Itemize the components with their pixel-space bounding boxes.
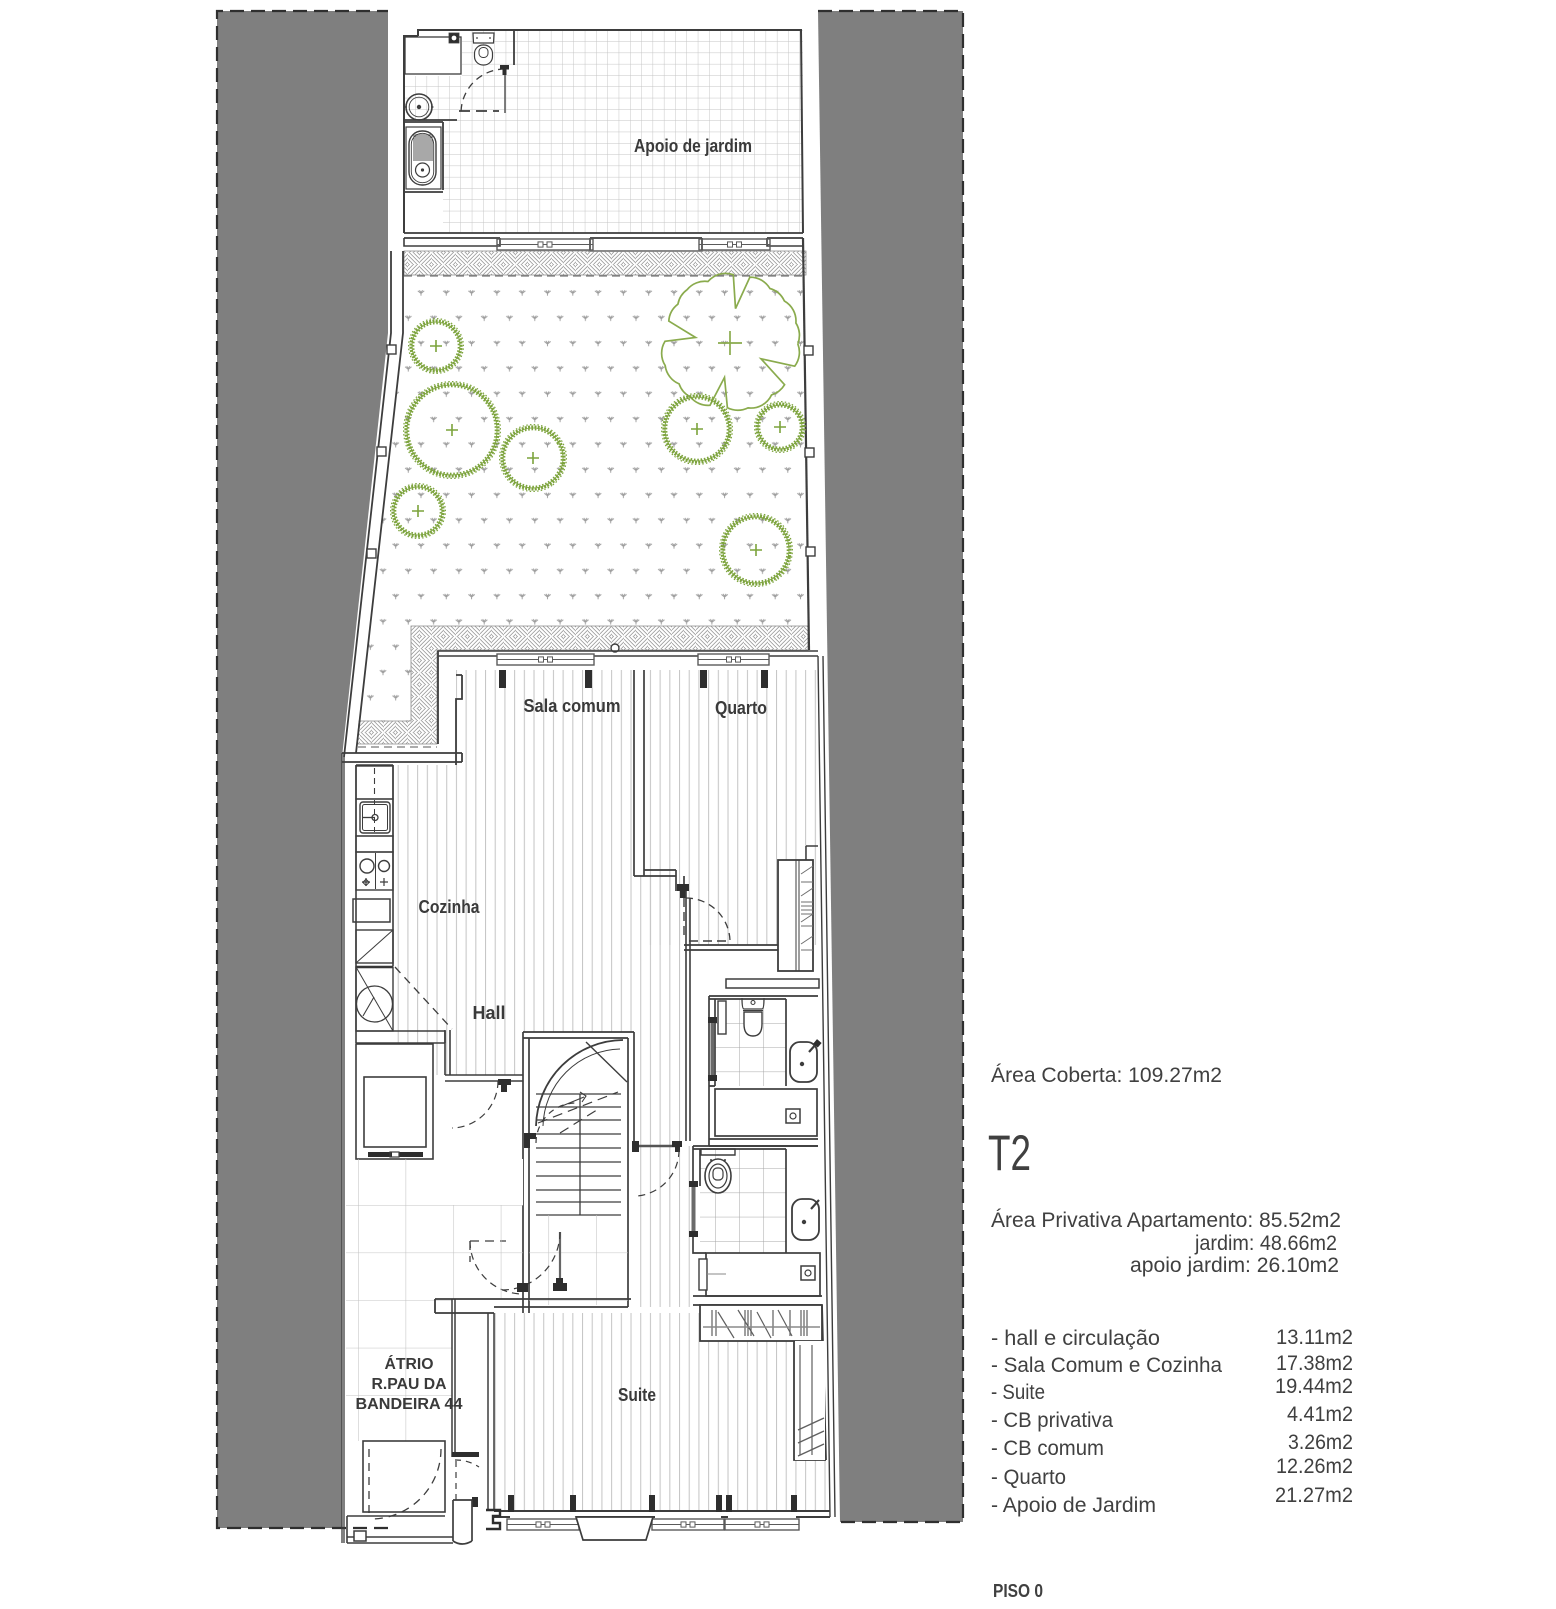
svg-text:- CB privativa: - CB privativa (991, 1409, 1113, 1432)
svg-text:Apoio de jardim: Apoio de jardim (634, 136, 752, 156)
svg-text:PISO 0: PISO 0 (993, 1581, 1043, 1601)
svg-text:13.11m2: 13.11m2 (1276, 1326, 1353, 1349)
svg-text:3.26m2: 3.26m2 (1288, 1431, 1353, 1454)
svg-text:jardim: 48.66m2: jardim: 48.66m2 (1194, 1232, 1337, 1255)
svg-text:BANDEIRA 44: BANDEIRA 44 (356, 1396, 463, 1413)
svg-text:- CB comum: - CB comum (991, 1437, 1104, 1460)
svg-text:Área Privativa Apartamento: 85: Área Privativa Apartamento: 85.52m2 (991, 1209, 1341, 1232)
svg-text:- Suite: - Suite (991, 1381, 1045, 1404)
svg-text:Cozinha: Cozinha (419, 897, 481, 917)
svg-text:19.44m2: 19.44m2 (1275, 1375, 1353, 1398)
svg-text:R.PAU DA: R.PAU DA (372, 1376, 447, 1393)
svg-text:4.41m2: 4.41m2 (1287, 1403, 1353, 1426)
svg-text:21.27m2: 21.27m2 (1275, 1484, 1353, 1507)
svg-text:- Sala Comum e Cozinha: - Sala Comum e Cozinha (991, 1354, 1222, 1377)
svg-text:12.26m2: 12.26m2 (1276, 1455, 1353, 1478)
svg-text:T2: T2 (988, 1125, 1031, 1181)
svg-text:Área Coberta: 109.27m2: Área Coberta: 109.27m2 (991, 1064, 1222, 1087)
svg-text:Quarto: Quarto (715, 698, 767, 718)
svg-text:apoio jardim: 26.10m2: apoio jardim: 26.10m2 (1130, 1254, 1339, 1277)
svg-text:Suite: Suite (618, 1385, 656, 1405)
svg-text:- hall e circulação: - hall e circulação (991, 1327, 1160, 1350)
svg-text:- Quarto: - Quarto (991, 1466, 1066, 1489)
svg-text:ÁTRIO: ÁTRIO (385, 1354, 434, 1373)
svg-text:- Apoio de Jardim: - Apoio de Jardim (991, 1494, 1156, 1517)
svg-text:17.38m2: 17.38m2 (1276, 1352, 1353, 1375)
svg-text:Sala comum: Sala comum (524, 696, 621, 716)
svg-text:Hall: Hall (473, 1003, 506, 1023)
